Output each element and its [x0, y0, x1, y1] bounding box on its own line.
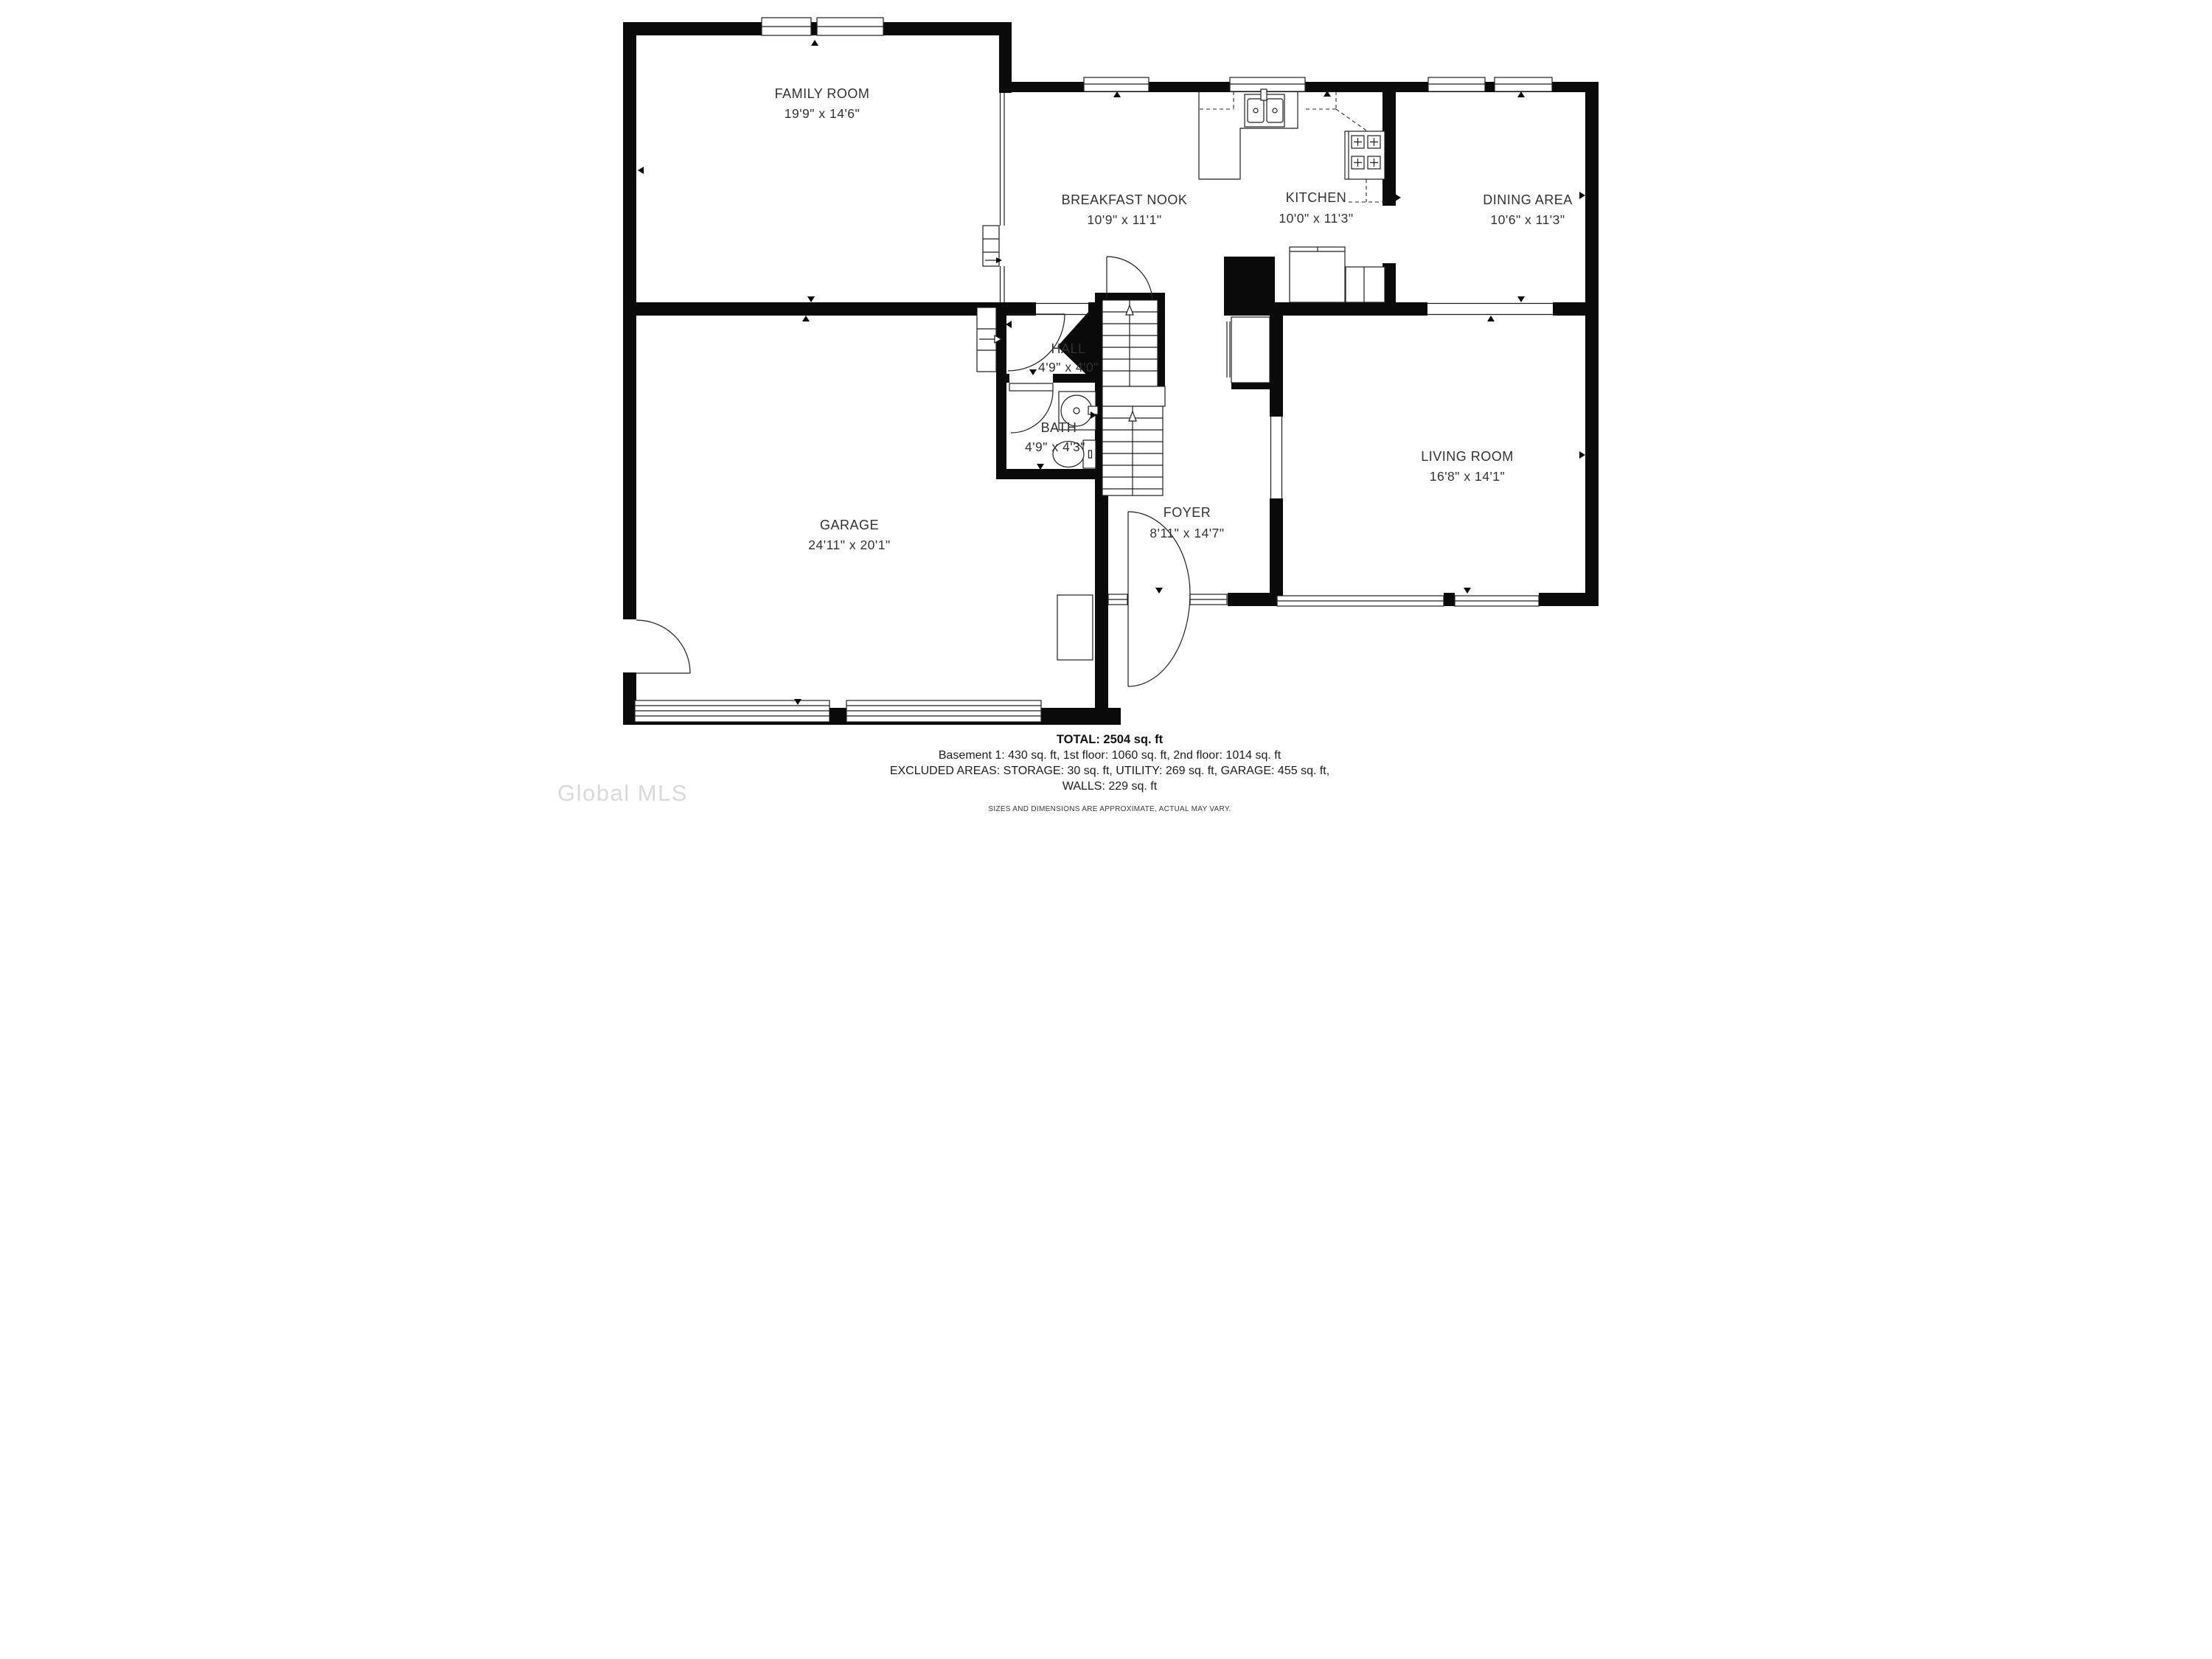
room-name: FOYER [1164, 505, 1211, 520]
room-dims: 4'9" x 4'3" [1025, 439, 1085, 454]
footer: TOTAL: 2504 sq. ft Basement 1: 430 sq. f… [890, 733, 1329, 813]
window [1428, 77, 1485, 91]
window [1277, 596, 1444, 606]
room-name: KITCHEN [1286, 190, 1347, 205]
room-label-kitchen: KITCHEN 10'0" x 11'3" [1279, 190, 1353, 226]
room-name: FAMILY ROOM [775, 86, 870, 101]
floor-plan-page: FAMILY ROOM 19'9" x 14'6" BREAKFAST NOOK… [553, 0, 1659, 829]
room-label-foyer: FOYER 8'11" x 14'7" [1150, 505, 1224, 540]
room-name: DINING AREA [1483, 192, 1573, 207]
footer-walls: WALLS: 229 sq. ft [1062, 780, 1158, 793]
room-label-family-room: FAMILY ROOM 19'9" x 14'6" [775, 86, 870, 121]
staircase [1102, 300, 1165, 495]
window [1084, 77, 1149, 91]
room-dims: 10'0" x 11'3" [1279, 211, 1353, 226]
window [1495, 77, 1552, 91]
window [762, 18, 811, 35]
stove-icon [1345, 131, 1385, 179]
room-dims: 8'11" x 14'7" [1150, 526, 1224, 540]
garage-storage [1057, 595, 1093, 660]
room-name: BATH [1041, 420, 1077, 435]
room-dims: 4'9" x 4'0" [1038, 360, 1099, 375]
window [1455, 596, 1539, 606]
footer-disclaimer: SIZES AND DIMENSIONS ARE APPROXIMATE, AC… [988, 805, 1231, 813]
window-sidelight [1190, 594, 1227, 605]
footer-total: TOTAL: 2504 sq. ft [1057, 733, 1164, 746]
footer-floors: Basement 1: 430 sq. ft, 1st floor: 1060 … [939, 749, 1281, 762]
side-door-opening [623, 619, 636, 672]
room-dims: 16'8" x 14'1" [1430, 469, 1505, 484]
room-label-living-room: LIVING ROOM 16'8" x 14'1" [1421, 449, 1514, 484]
watermark-logo: Global MLS [557, 780, 688, 806]
window-sidelight [1108, 594, 1127, 605]
floor-plan-canvas: FAMILY ROOM 19'9" x 14'6" BREAKFAST NOOK… [553, 0, 1659, 829]
chimney [1224, 257, 1275, 316]
room-label-breakfast-nook: BREAKFAST NOOK 10'9" x 11'1" [1062, 192, 1188, 227]
room-name: GARAGE [820, 518, 879, 532]
wall-openings [1001, 93, 1554, 498]
room-dims: 10'9" x 11'1" [1087, 212, 1161, 227]
room-label-garage: GARAGE 24'11" x 20'1" [808, 518, 890, 552]
door-arc-garage-side [636, 620, 690, 673]
room-dims: 24'11" x 20'1" [808, 538, 890, 552]
room-dims: 19'9" x 14'6" [785, 106, 860, 121]
room-name: BREAKFAST NOOK [1062, 192, 1188, 207]
counter [1346, 267, 1385, 302]
sink-icon [1245, 89, 1284, 127]
window [1230, 77, 1305, 91]
room-dims: 10'6" x 11'3" [1490, 212, 1565, 227]
room-name: HALL [1051, 341, 1085, 356]
closet [1227, 317, 1270, 383]
window [817, 18, 883, 35]
fridge-icon [1290, 247, 1345, 302]
room-label-bath: BATH 4'9" x 4'3" [1025, 420, 1085, 454]
room-label-dining-area: DINING AREA 10'6" x 11'3" [1483, 192, 1573, 227]
footer-excluded: EXCLUDED AREAS: STORAGE: 30 sq. ft, UTIL… [890, 765, 1329, 777]
room-name: LIVING ROOM [1421, 449, 1514, 464]
